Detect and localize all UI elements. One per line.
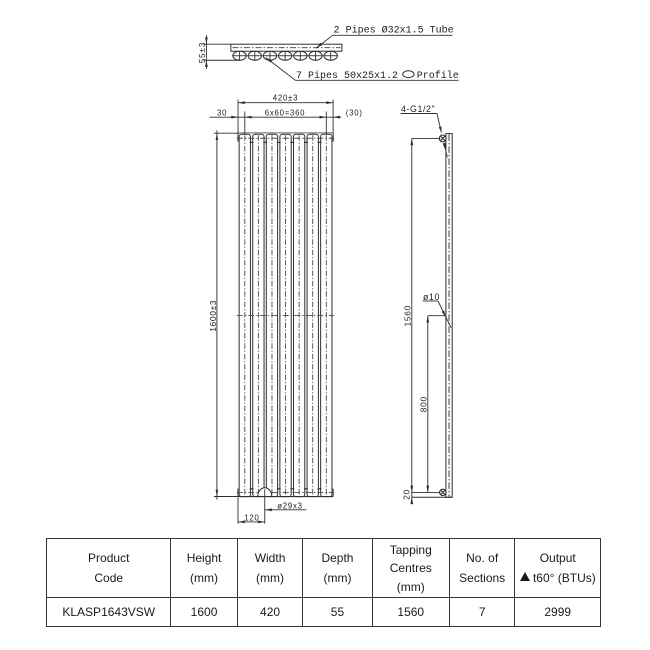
svg-text:ø29x3: ø29x3 xyxy=(277,501,302,510)
svg-text:1600±3: 1600±3 xyxy=(208,300,218,332)
svg-text:420±3: 420±3 xyxy=(273,93,298,102)
svg-text:55±3: 55±3 xyxy=(197,42,207,63)
svg-text:30: 30 xyxy=(217,108,227,117)
svg-text:Profile: Profile xyxy=(417,70,459,82)
svg-text:800: 800 xyxy=(419,396,429,412)
svg-text:2 Pipes Ø32x1.5 Tube: 2 Pipes Ø32x1.5 Tube xyxy=(334,24,454,36)
svg-text:(30): (30) xyxy=(346,108,363,117)
svg-text:1560: 1560 xyxy=(403,305,413,326)
svg-text:6x60=360: 6x60=360 xyxy=(265,108,305,117)
svg-text:4-G1/2": 4-G1/2" xyxy=(401,104,435,114)
svg-text:20: 20 xyxy=(402,489,412,500)
svg-text:ø10: ø10 xyxy=(423,292,440,302)
svg-text:7 Pipes 50x25x1.2: 7 Pipes 50x25x1.2 xyxy=(296,70,398,82)
svg-text:120: 120 xyxy=(244,513,259,522)
